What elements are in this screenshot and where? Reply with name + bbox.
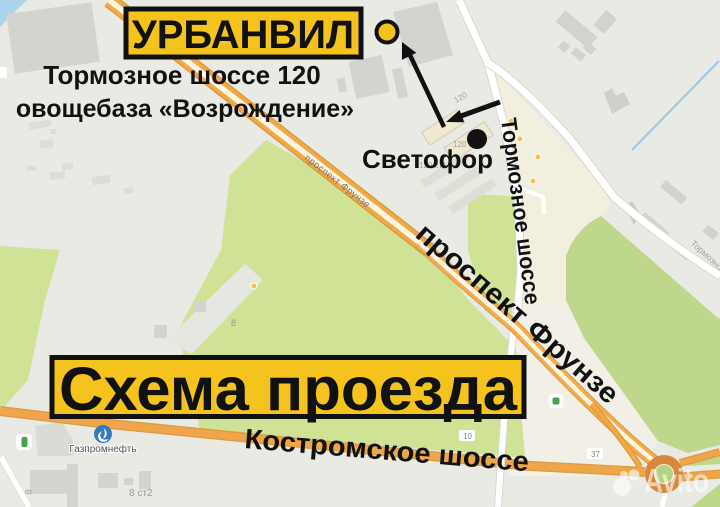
svg-text:Avito: Avito <box>644 462 709 499</box>
svg-text:Тормозное шоссе 120: Тормозное шоссе 120 <box>43 60 320 90</box>
svg-text:8 ст2: 8 ст2 <box>129 488 153 499</box>
svg-text:Газпромнефть: Газпромнефть <box>69 443 136 455</box>
svg-text:овощебаза «Возрождение»: овощебаза «Возрождение» <box>16 95 354 123</box>
svg-text:Светофор: Светофор <box>362 144 493 174</box>
svg-text:Схема проезда: Схема проезда <box>59 355 518 423</box>
svg-text:УРБАНВИЛ: УРБАНВИЛ <box>132 13 354 57</box>
svg-text:10: 10 <box>463 432 472 441</box>
svg-text:37: 37 <box>591 450 600 459</box>
svg-text:8: 8 <box>231 318 236 328</box>
